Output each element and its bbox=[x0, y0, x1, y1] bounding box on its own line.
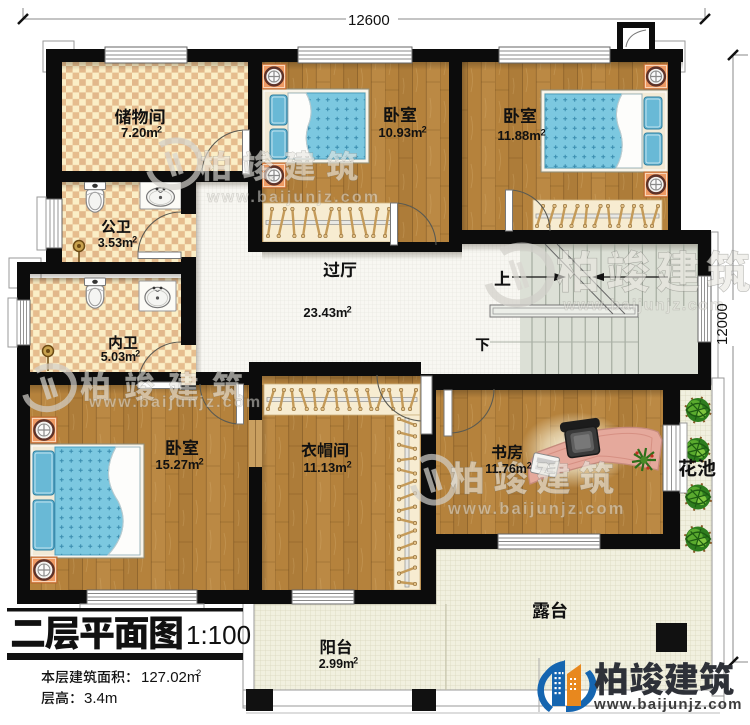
svg-text:23.43m: 23.43m bbox=[303, 305, 347, 320]
svg-text:2: 2 bbox=[527, 461, 532, 471]
svg-text:10.93m: 10.93m bbox=[378, 125, 422, 140]
svg-text:2: 2 bbox=[353, 656, 358, 666]
svg-text:5.03m: 5.03m bbox=[101, 350, 136, 364]
svg-text:www.baijunjz.com: www.baijunjz.com bbox=[88, 394, 262, 411]
svg-text:www.baijunjz.com: www.baijunjz.com bbox=[593, 696, 743, 713]
svg-text:2: 2 bbox=[135, 349, 140, 359]
svg-text:2: 2 bbox=[347, 304, 352, 314]
svg-text:2: 2 bbox=[541, 127, 546, 137]
svg-text:11.88m: 11.88m bbox=[497, 128, 540, 143]
svg-text:2: 2 bbox=[196, 668, 201, 679]
svg-text:2: 2 bbox=[347, 459, 352, 469]
svg-text:www.baijunjz.com: www.baijunjz.com bbox=[206, 189, 380, 206]
svg-text:2: 2 bbox=[132, 235, 137, 245]
svg-text:2.99m: 2.99m bbox=[319, 657, 354, 671]
svg-text:3.4m: 3.4m bbox=[84, 690, 117, 707]
svg-text:12000: 12000 bbox=[714, 303, 731, 345]
svg-text:127.02m: 127.02m bbox=[141, 669, 199, 686]
svg-text:3.53m: 3.53m bbox=[98, 236, 133, 250]
svg-text:2: 2 bbox=[422, 124, 427, 134]
svg-text:2: 2 bbox=[157, 124, 162, 134]
svg-text:www.baijunjz.com: www.baijunjz.com bbox=[447, 500, 626, 518]
svg-text:11.13m: 11.13m bbox=[303, 460, 346, 475]
svg-text:2: 2 bbox=[199, 456, 204, 466]
svg-text:11.76m: 11.76m bbox=[485, 462, 527, 476]
svg-text:12600: 12600 bbox=[348, 12, 390, 29]
svg-text:www.baijunjz.com: www.baijunjz.com bbox=[562, 297, 725, 314]
svg-text:1:100: 1:100 bbox=[186, 620, 251, 650]
svg-text:7.20m: 7.20m bbox=[121, 125, 158, 140]
svg-text:15.27m: 15.27m bbox=[155, 457, 199, 472]
